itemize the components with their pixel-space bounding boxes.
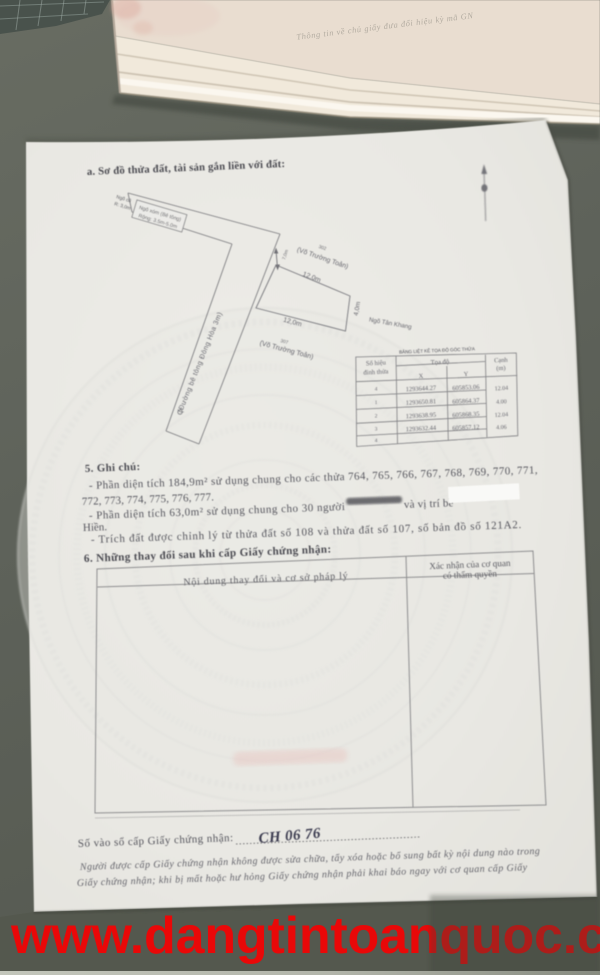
svg-text:Y: Y xyxy=(463,371,468,378)
svg-text:Số hiệu: Số hiệu xyxy=(366,359,387,367)
svg-text:605853.06: 605853.06 xyxy=(452,384,480,392)
svg-text:605864.37: 605864.37 xyxy=(452,397,480,405)
svg-text:(m): (m) xyxy=(496,365,506,372)
svg-text:Tọa độ: Tọa độ xyxy=(431,358,451,366)
svg-text:Cạnh: Cạnh xyxy=(494,357,509,365)
svg-text:1: 1 xyxy=(375,400,378,406)
svg-text:605868.35: 605868.35 xyxy=(452,411,480,419)
svg-text:605857.12: 605857.12 xyxy=(452,424,480,432)
svg-text:3: 3 xyxy=(375,427,378,433)
svg-text:Hiền.: Hiền. xyxy=(83,521,108,534)
svg-text:X: X xyxy=(418,373,423,380)
svg-text:4: 4 xyxy=(375,387,378,393)
svg-text:và vị trí bề: và vị trí bề xyxy=(404,497,454,511)
svg-text:5. Ghi chú:: 5. Ghi chú: xyxy=(85,461,141,475)
svg-text:12.04: 12.04 xyxy=(495,386,509,393)
svg-text:4: 4 xyxy=(375,438,378,444)
svg-text:4.00: 4.00 xyxy=(496,399,507,406)
svg-text:4.06: 4.06 xyxy=(496,425,507,432)
svg-text:2: 2 xyxy=(375,414,378,420)
svg-text:đỉnh thửa: đỉnh thửa xyxy=(363,368,388,376)
svg-text:12.04: 12.04 xyxy=(495,412,509,419)
